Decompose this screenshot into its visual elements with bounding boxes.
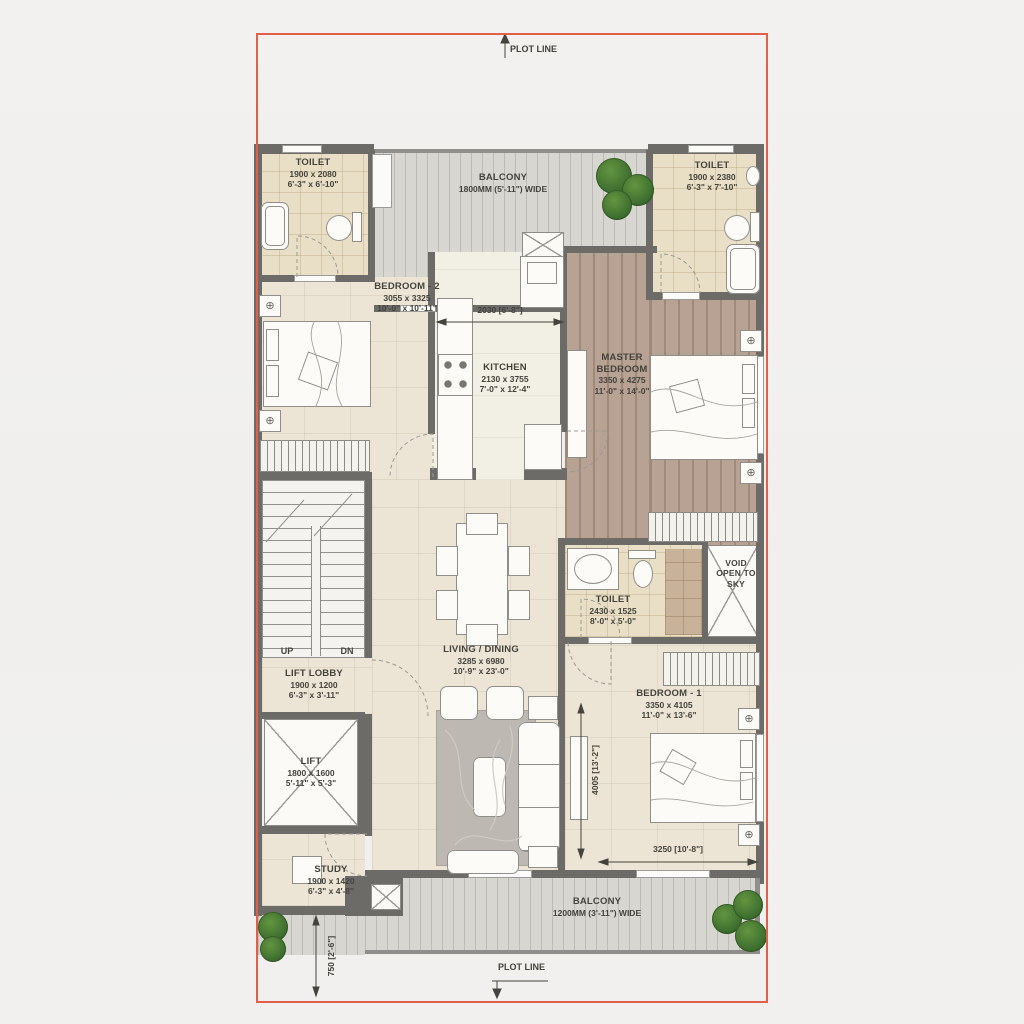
room-name: TOILET [687, 160, 738, 172]
room-label-balcony-bottom: BALCONY 1200MM (3'-11") WIDE [553, 896, 641, 918]
dim-label-bedroom1-width: 3250 [10'-8"] [653, 844, 703, 854]
room-dim-mm: 3055 x 3325 [374, 293, 440, 303]
room-dim-mm: 2130 x 3755 [480, 374, 531, 384]
room-dim-ft: 10'-9" x 23'-0" [443, 666, 519, 676]
dim-text: 750 [2'-6"] [326, 936, 336, 977]
room-dim-mm: 1900 x 2080 [288, 169, 339, 179]
room-name: STUDY [307, 864, 354, 876]
room-name: TOILET [589, 594, 636, 606]
room-dim-ft: 6'-3" x 6'-10" [288, 179, 339, 189]
plot-line-label-bottom: PLOT LINE [498, 962, 545, 972]
room-dim-ft: 10'-0" x 10'-11" [374, 303, 440, 313]
dim-text: 4005 [13'-2"] [590, 745, 600, 795]
room-name: TOILET [288, 157, 339, 169]
room-label-master-bedroom: MASTER BEDROOM 3350 x 4275 11'-0" x 14'-… [583, 352, 661, 396]
room-dim-ft: 11'-0" x 14'-0" [583, 386, 661, 396]
up-text: UP [281, 646, 294, 656]
room-label-toilet-top-right: TOILET 1900 x 2380 6'-3" x 7'-10" [687, 160, 738, 192]
floor-plan-canvas: ⊕ ⊕ ⊕ ⊕ ⊕ ⊕ [0, 0, 1024, 1024]
room-name: LIFT LOBBY [285, 668, 343, 680]
room-label-study: STUDY 1900 x 1420 6'-3" x 4'-8" [307, 864, 354, 896]
dim-text: 3250 [10'-8"] [653, 844, 703, 854]
room-dim-mm: 1900 x 1420 [307, 876, 354, 886]
room-dim-mm: 3350 x 4275 [583, 375, 661, 385]
room-name: VOID OPEN TO SKY [713, 558, 759, 589]
room-dim-ft: 6'-3" x 3'-11" [285, 690, 343, 700]
plot-line-text: PLOT LINE [498, 962, 545, 972]
room-dim: 1800MM (5'-11") WIDE [459, 184, 547, 194]
room-dim-mm: 1800 x 1600 [286, 768, 336, 778]
room-dim-mm: 1900 x 1200 [285, 680, 343, 690]
room-dim-ft: 8'-0" x 5'-0" [589, 616, 636, 626]
room-name: MASTER BEDROOM [583, 352, 661, 375]
room-name: BALCONY [459, 172, 547, 184]
dim-text: 2030 [6'-8"] [477, 305, 522, 315]
room-label-living-dining: LIVING / DINING 3285 x 6980 10'-9" x 23'… [443, 644, 519, 676]
room-dim-ft: 6'-3" x 4'-8" [307, 886, 354, 896]
room-dim-mm: 3350 x 4105 [636, 700, 702, 710]
room-dim-ft: 6'-3" x 7'-10" [687, 182, 738, 192]
plot-line-label-top: PLOT LINE [510, 44, 557, 54]
room-name: LIVING / DINING [443, 644, 519, 656]
room-label-balcony-top: BALCONY 1800MM (5'-11") WIDE [459, 172, 547, 194]
room-name: BEDROOM - 1 [636, 688, 702, 700]
room-label-toilet-mid: TOILET 2430 x 1525 8'-0" x 5'-0" [589, 594, 636, 626]
room-dim-mm: 2430 x 1525 [589, 606, 636, 616]
room-name: BEDROOM - 2 [374, 281, 440, 293]
room-dim-ft: 7'-0" x 12'-4" [480, 384, 531, 394]
room-label-toilet-top-left: TOILET 1900 x 2080 6'-3" x 6'-10" [288, 157, 339, 189]
dim-label-rear-setback: 750 [2'-6"] [326, 936, 336, 977]
stairs-up-label: UP [281, 646, 294, 656]
room-dim-mm: 3285 x 6980 [443, 656, 519, 666]
plot-line-text: PLOT LINE [510, 44, 557, 54]
room-dim: 1200MM (3'-11") WIDE [553, 908, 641, 918]
room-name: LIFT [286, 756, 336, 768]
room-label-void: VOID OPEN TO SKY [713, 558, 759, 589]
room-label-lift-lobby: LIFT LOBBY 1900 x 1200 6'-3" x 3'-11" [285, 668, 343, 700]
dim-label-bedroom1-height: 4005 [13'-2"] [590, 745, 600, 795]
room-label-lift: LIFT 1800 x 1600 5'-11" x 5'-3" [286, 756, 336, 788]
room-label-bedroom-2: BEDROOM - 2 3055 x 3325 10'-0" x 10'-11" [374, 281, 440, 313]
dim-label-passage: 2030 [6'-8"] [477, 305, 522, 315]
stairs-down-label: DN [341, 646, 354, 656]
room-label-bedroom-1: BEDROOM - 1 3350 x 4105 11'-0" x 13'-6" [636, 688, 702, 720]
room-dim-mm: 1900 x 2380 [687, 172, 738, 182]
room-label-kitchen: KITCHEN 2130 x 3755 7'-0" x 12'-4" [480, 362, 531, 394]
room-name: BALCONY [553, 896, 641, 908]
dn-text: DN [341, 646, 354, 656]
room-name: KITCHEN [480, 362, 531, 374]
room-dim-ft: 5'-11" x 5'-3" [286, 778, 336, 788]
room-dim-ft: 11'-0" x 13'-6" [636, 710, 702, 720]
